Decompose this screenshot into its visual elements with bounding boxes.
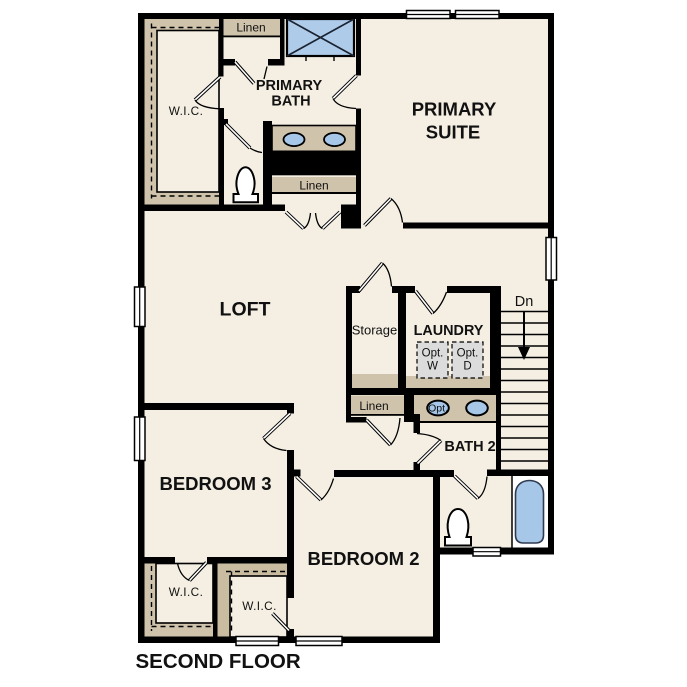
svg-text:LAUNDRY: LAUNDRY [414, 323, 484, 339]
svg-text:SUITE: SUITE [426, 122, 480, 143]
svg-text:PRIMARY: PRIMARY [256, 78, 323, 94]
svg-text:SECOND FLOOR: SECOND FLOOR [136, 650, 301, 673]
svg-text:W.I.C.: W.I.C. [242, 599, 277, 613]
svg-text:BATH: BATH [271, 94, 310, 110]
svg-text:W.I.C.: W.I.C. [169, 104, 204, 118]
svg-text:Opt.: Opt. [428, 403, 448, 415]
svg-text:Linen: Linen [359, 399, 388, 413]
svg-text:Storage: Storage [352, 323, 398, 338]
svg-text:BEDROOM 3: BEDROOM 3 [159, 473, 271, 494]
svg-text:W: W [427, 361, 438, 373]
svg-text:W.I.C.: W.I.C. [169, 585, 204, 599]
svg-text:Linen: Linen [299, 179, 328, 193]
svg-text:Linen: Linen [236, 21, 265, 35]
svg-text:D: D [463, 361, 471, 373]
svg-text:Opt.: Opt. [457, 348, 479, 360]
svg-text:BEDROOM 2: BEDROOM 2 [307, 548, 419, 569]
svg-text:LOFT: LOFT [220, 299, 271, 321]
svg-text:BATH 2: BATH 2 [444, 439, 495, 455]
svg-text:Opt.: Opt. [422, 348, 444, 360]
svg-text:Dn: Dn [515, 294, 534, 310]
svg-text:PRIMARY: PRIMARY [412, 99, 497, 120]
